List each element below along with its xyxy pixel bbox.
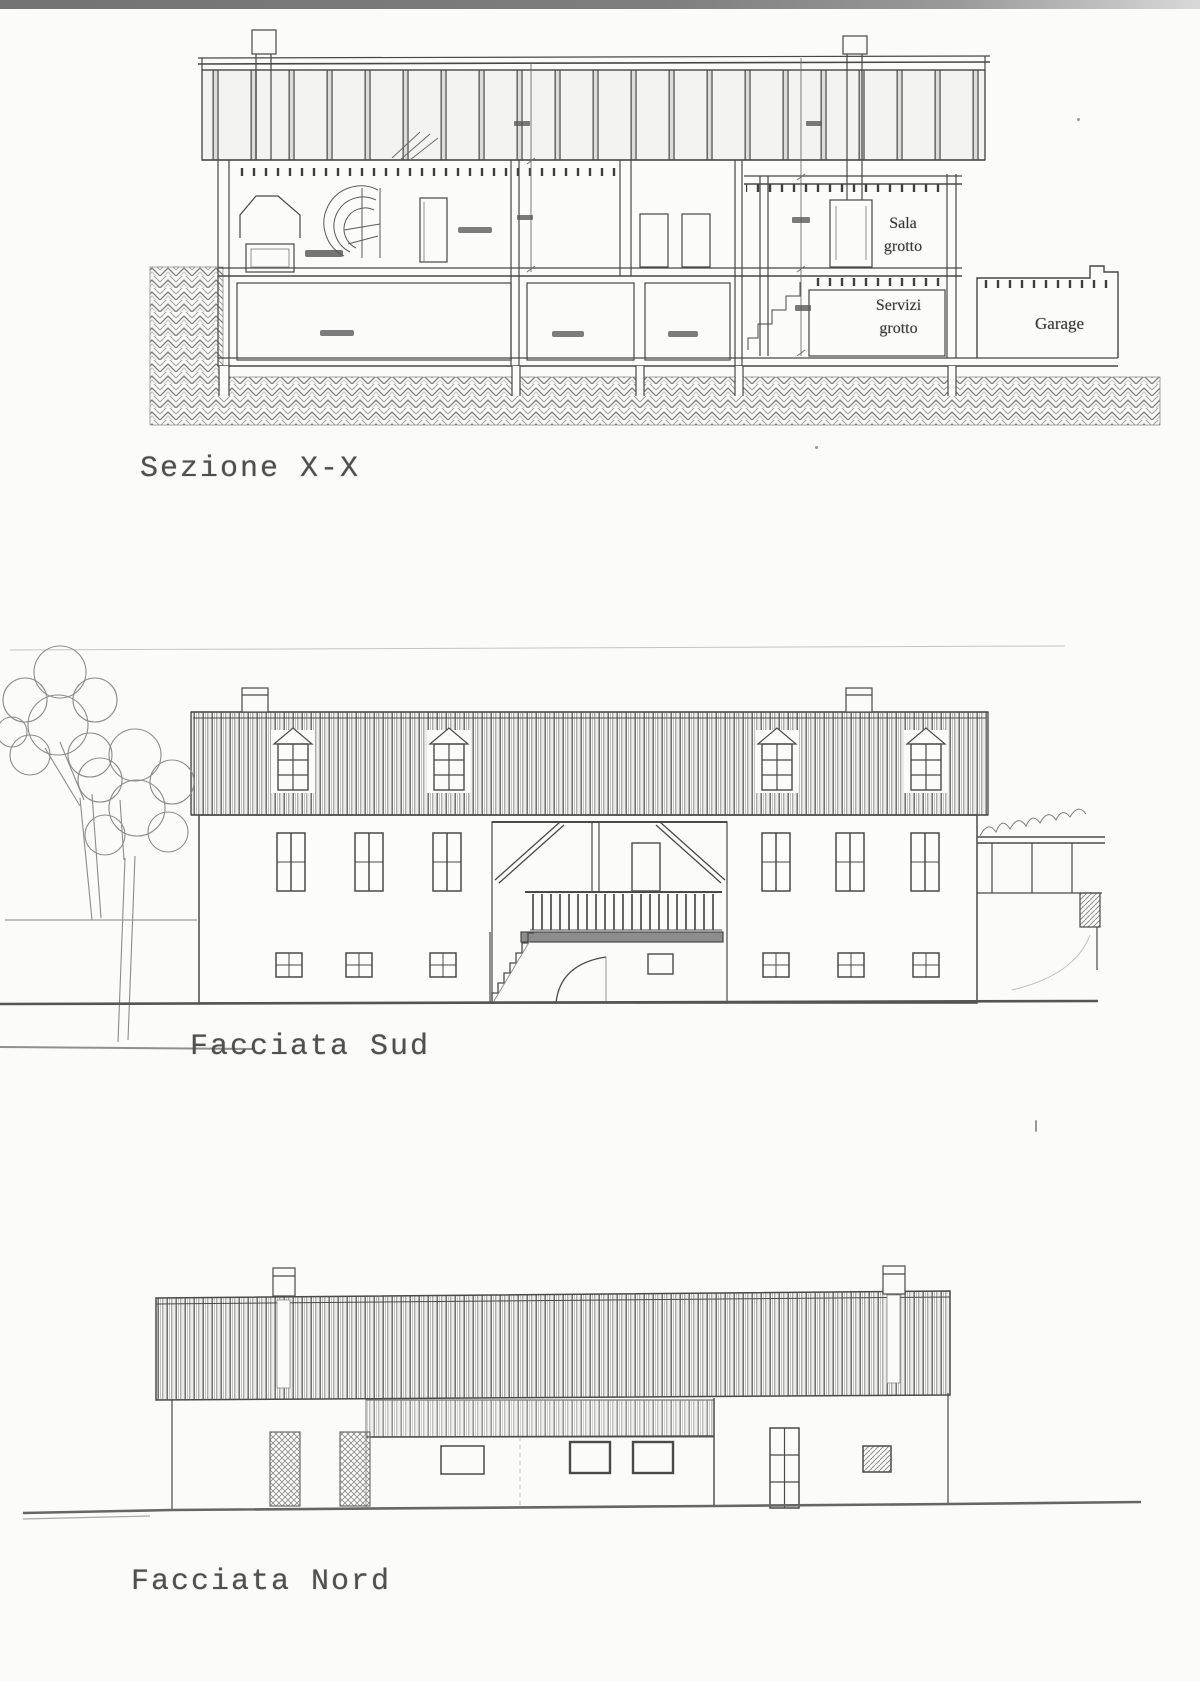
north-door [770,1428,799,1508]
north-facade-drawing [0,1150,1200,1681]
south-loggia [490,822,727,1003]
section-attic-frame [198,56,990,160]
north-lower-roof [366,1400,714,1437]
north-shuttered-openings [270,1432,370,1506]
north-ground-lines [23,1502,1141,1519]
north-facade-caption: Facciata Nord [131,1565,391,1599]
scan-artifact [1077,118,1080,121]
north-roof [156,1291,950,1400]
south-facade-drawing [0,590,1200,1070]
section-spiral-stair [324,186,380,258]
south-chimney-right [846,688,872,712]
scanned-drawing-sheet: Sala grotto Servizi grotto Garage Sezion… [0,0,1200,1681]
south-pergola [977,809,1105,990]
south-trees [0,646,194,1042]
section-label-garage: Garage [1035,312,1135,337]
south-chimney-left [242,688,268,712]
section-drawing [0,0,1200,470]
scan-artifact [815,446,818,449]
section-doors [420,198,710,267]
south-horizon-line [10,646,1065,650]
south-facade-caption: Facciata Sud [190,1030,430,1064]
north-middle-windows [441,1442,673,1474]
section-caption: Sezione X-X [140,452,360,486]
section-ground-hatch [150,267,1160,425]
north-small-window [863,1446,891,1472]
scan-artifact [1035,1120,1037,1132]
section-label-servizi-grotto: Servizi grotto [856,294,941,340]
section-label-sala-grotto: Sala grotto [872,212,934,258]
